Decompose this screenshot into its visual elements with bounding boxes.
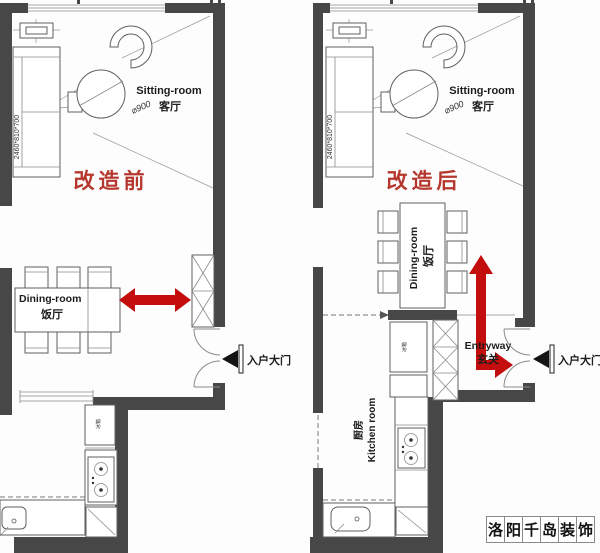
- left-tv-unit: [13, 19, 60, 43]
- watermark-char: 千: [522, 516, 541, 543]
- right-tv-unit: [326, 19, 373, 43]
- right-plan-top-window: [330, 5, 478, 11]
- right-sitting-room-label-en: Sitting-room: [449, 85, 515, 97]
- right-kitchen-label-en: Kitchen room: [367, 398, 378, 463]
- right-kitchen-label-zh: 厨房: [352, 420, 365, 440]
- watermark-char: 岛: [540, 516, 559, 543]
- right-sofa-dimension: 2460*810*700: [327, 115, 334, 159]
- left-plan-kitchen-window: [20, 390, 93, 403]
- right-sofa: [326, 47, 395, 177]
- left-entrance-label: 入户大门: [247, 353, 291, 367]
- right-dining-room-label-zh: 饭厅: [421, 245, 435, 268]
- left-dining-room-label-zh: 饭厅: [40, 307, 63, 321]
- right-entrance-label: 入户大门: [558, 353, 600, 367]
- left-sofa: [13, 47, 82, 177]
- watermark-char: 装: [558, 516, 577, 543]
- watermark-char: 阳: [504, 516, 523, 543]
- right-fridge-cabinet: [390, 322, 427, 397]
- left-plan: 2460*810*700 ⌀900 Sitting-room 客厅 改造前: [0, 0, 291, 553]
- left-dining-room-label-en: Dining-room: [19, 293, 81, 305]
- left-armchair: [110, 26, 152, 68]
- watermark-char: 洛: [486, 516, 505, 543]
- left-move-arrow: [119, 288, 191, 312]
- floorplan-comparison: 2460*810*700 ⌀900 Sitting-room 客厅 改造前: [0, 0, 600, 553]
- watermark-logo: 洛 阳 千 岛 装 饰: [486, 516, 595, 543]
- right-entryway-label-en: Entryway: [465, 340, 512, 352]
- left-sitting-room-label-en: Sitting-room: [136, 85, 202, 97]
- left-plan-top-window: [28, 5, 165, 11]
- right-table-diameter: ⌀900: [442, 99, 465, 116]
- left-sofa-dimension: 2460*810*700: [14, 115, 21, 159]
- right-round-table: [390, 70, 438, 118]
- left-phase-label: 改造前: [74, 169, 149, 193]
- right-fridge-label: 冰箱: [401, 342, 408, 352]
- right-plan: 2460*810*700 ⌀900 Sitting-room 客厅 改造后: [310, 0, 600, 553]
- right-dining-room-label-en: Dining-room: [408, 227, 420, 289]
- right-entryway-label-zh: 玄关: [477, 352, 499, 366]
- left-entrance-marker: [222, 345, 243, 373]
- right-entrance-door: [504, 329, 530, 387]
- right-entrance-marker: [533, 345, 554, 373]
- watermark-char: 饰: [576, 516, 595, 543]
- left-fridge-label: 冰箱: [95, 419, 102, 429]
- left-sitting-room-label-zh: 客厅: [158, 99, 181, 113]
- left-entrance-door: [194, 329, 220, 387]
- floorplan-drawing: 2460*810*700 ⌀900 Sitting-room 客厅 改造前: [0, 0, 600, 553]
- right-sitting-room-label-zh: 客厅: [471, 99, 494, 113]
- left-hall-cabinet: [192, 255, 214, 327]
- right-phase-label: 改造后: [387, 169, 462, 193]
- left-table-diameter: ⌀900: [129, 99, 152, 116]
- right-hall-cabinet: [433, 320, 458, 400]
- left-dining-table: [15, 267, 120, 353]
- left-round-table: [77, 70, 125, 118]
- right-armchair: [423, 26, 465, 68]
